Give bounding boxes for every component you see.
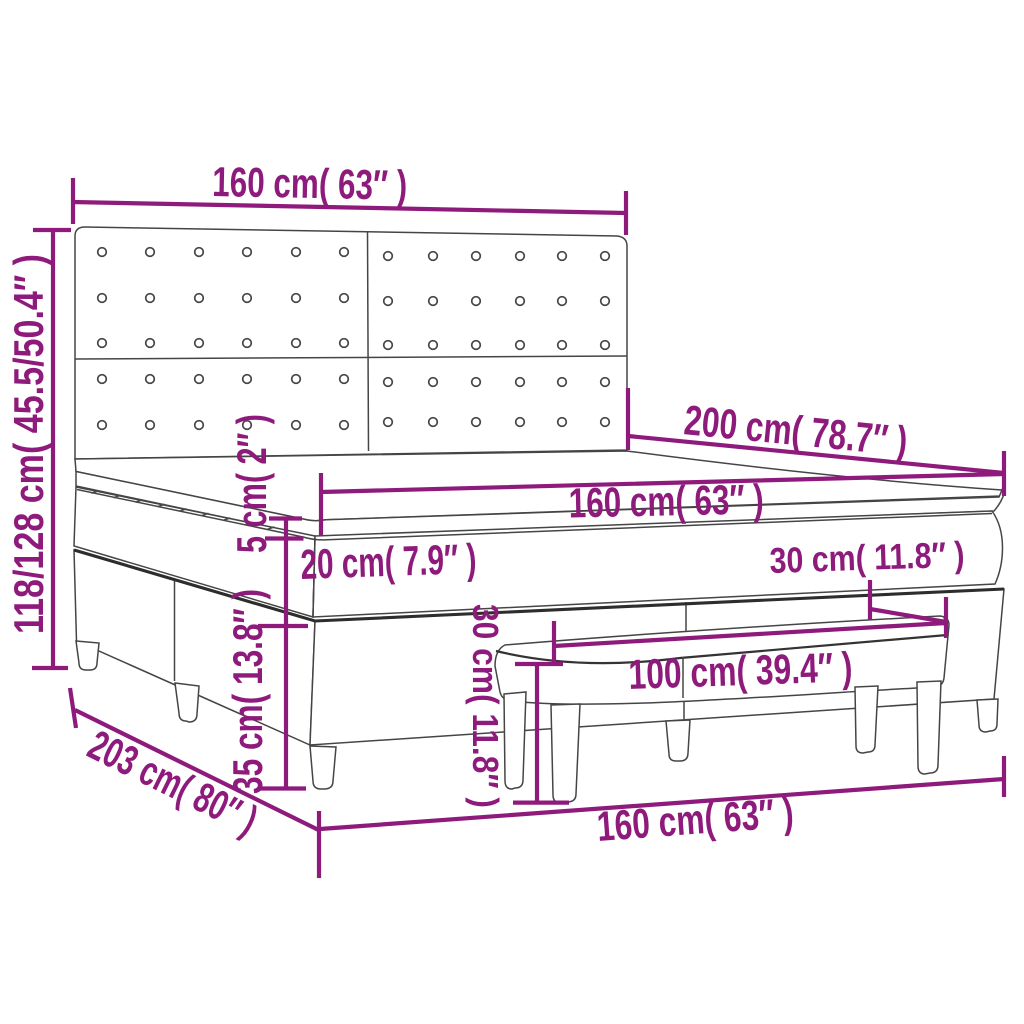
svg-text:118/128 cm( 45.5/50.4″ ): 118/128 cm( 45.5/50.4″ ): [5, 254, 52, 634]
svg-text:160 cm( 63″ ): 160 cm( 63″ ): [568, 475, 764, 526]
svg-text:30 cm( 11.8″ ): 30 cm( 11.8″ ): [769, 534, 965, 581]
svg-text:100 cm( 39.4″ ): 100 cm( 39.4″ ): [628, 643, 854, 698]
svg-text:20 cm( 7.9″ ): 20 cm( 7.9″ ): [300, 535, 478, 588]
svg-text:160 cm( 63″ ): 160 cm( 63″ ): [212, 158, 408, 209]
svg-text:30 cm( 11.8″ ): 30 cm( 11.8″ ): [465, 604, 506, 808]
svg-text:35 cm( 13.8″ ): 35 cm( 13.8″ ): [224, 589, 271, 794]
svg-text:5 cm( 2″ ): 5 cm( 2″ ): [228, 414, 275, 553]
